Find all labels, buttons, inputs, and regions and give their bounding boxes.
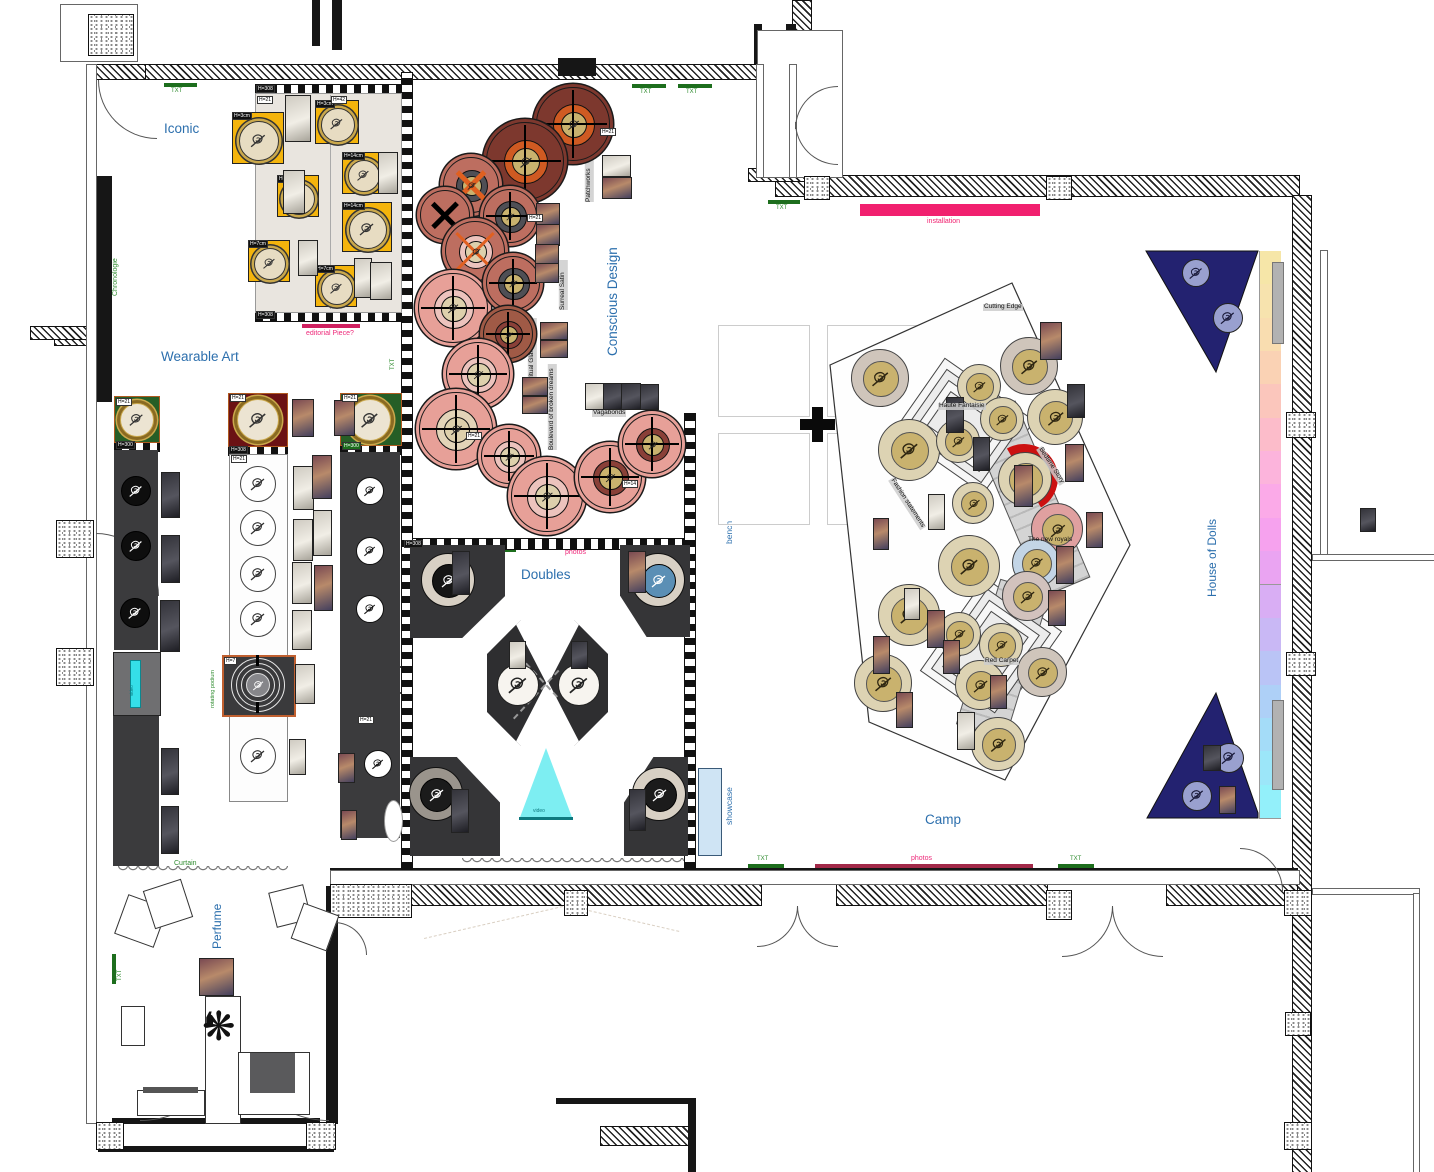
mannequin-icon	[504, 451, 516, 463]
podium-gold-ring	[120, 403, 154, 437]
garment-photo	[1014, 465, 1033, 507]
zone-label-cutting-edge: Cutting Edge	[983, 304, 1023, 311]
height-tag: H=21	[230, 394, 246, 402]
rainbow-segment	[1259, 351, 1281, 385]
mannequin-icon	[248, 518, 268, 538]
doll-disc	[1182, 781, 1212, 811]
height-tag: H=42	[331, 96, 347, 104]
mannequin-icon	[988, 734, 1010, 756]
garment-photo	[160, 600, 180, 652]
display-plate	[511, 460, 583, 532]
garment-photo	[289, 739, 306, 775]
height-tag: H=21	[527, 214, 543, 222]
garment-photo	[957, 712, 975, 750]
mannequin-icon	[248, 130, 269, 151]
height-tag: H=14	[622, 480, 638, 488]
rainbow-segment	[1259, 484, 1281, 518]
display-plate	[622, 414, 682, 474]
height-tag: H=300	[116, 441, 135, 449]
garment-photo	[973, 437, 990, 471]
mannequin-icon	[126, 604, 144, 622]
mannequin-icon	[504, 330, 515, 341]
garment-photo	[312, 455, 332, 499]
height-tag: H=21	[257, 96, 273, 104]
garment-photo	[341, 810, 357, 840]
mannequin-icon	[449, 422, 465, 438]
video-label: video	[130, 670, 135, 696]
camp-plinth	[952, 482, 994, 524]
garment-photo	[313, 510, 332, 556]
garment-photo	[1067, 384, 1085, 418]
mannequin-icon	[362, 543, 378, 559]
garment-photo	[378, 152, 398, 194]
height-tag: H=21	[342, 394, 358, 402]
garment-photo	[292, 610, 312, 650]
perfume-bench-top	[143, 1087, 198, 1093]
doubles-duo-disc	[558, 664, 600, 706]
mannequin-icon	[362, 601, 378, 617]
yellow-pedestal: H=7cm	[248, 240, 290, 282]
garment-photo	[451, 789, 469, 833]
display-disc-outline	[240, 556, 276, 592]
display-plate	[486, 256, 540, 310]
hod-gray-bar	[1272, 262, 1284, 344]
rainbow-segment	[1259, 618, 1281, 652]
garment-photo	[990, 675, 1007, 709]
garment-photo	[1360, 508, 1376, 532]
plinth-core	[951, 548, 989, 586]
doll-disc	[1182, 259, 1210, 287]
hod-gray-bar	[1272, 700, 1284, 790]
height-tag: H=308	[256, 85, 275, 93]
plinth-core	[966, 373, 993, 400]
mannequin-icon	[1018, 587, 1038, 607]
mannequin-icon	[505, 672, 531, 698]
plinth-core	[420, 778, 454, 812]
height-tag: H=3cm	[232, 112, 252, 120]
mannequin-icon	[971, 378, 989, 396]
garment-photo	[943, 640, 960, 674]
garment-photo	[904, 588, 920, 620]
mannequin-icon	[566, 672, 592, 698]
yellow-pedestal: H=3cm	[232, 112, 284, 164]
garment-photo	[199, 958, 234, 996]
height-tag: H=21	[116, 398, 132, 406]
display-disc-light	[364, 750, 392, 778]
mannequin-icon	[355, 167, 372, 184]
doll-icon	[1219, 748, 1239, 768]
doubles-duo-disc	[497, 664, 539, 706]
garment-photo	[370, 262, 392, 300]
garment-photo	[602, 177, 632, 199]
mannequin-icon	[604, 471, 618, 485]
height-tag: H=21	[358, 716, 374, 724]
garment-photo	[873, 518, 889, 550]
mannequin-icon	[1045, 407, 1068, 430]
mannequin-icon	[427, 785, 447, 805]
mannequin-icon	[869, 367, 893, 391]
height-tag: H=7cm	[248, 240, 268, 248]
mannequin-icon	[248, 609, 268, 629]
perfume-stand	[121, 1006, 145, 1046]
mannequin-icon	[248, 564, 268, 584]
doll-icon	[1187, 264, 1205, 282]
display-disc-outline	[240, 466, 276, 502]
garment-photo	[161, 535, 180, 583]
camp-plinth	[1002, 571, 1052, 621]
mannequin-icon	[872, 672, 896, 696]
mannequin-icon	[127, 410, 146, 429]
rainbow-segment	[1259, 451, 1281, 485]
rainbow-segment	[1259, 418, 1281, 452]
garment-photo	[628, 551, 646, 593]
mannequin-icon	[505, 211, 516, 222]
height-tag: H=7	[224, 657, 237, 665]
garment-photo	[1219, 786, 1236, 814]
garment-photo	[161, 806, 179, 854]
mannequin-icon	[466, 180, 478, 192]
video-label: video	[533, 809, 545, 814]
mannequin-icon	[127, 537, 145, 555]
plinth-core	[1028, 658, 1059, 689]
height-tag: H=308	[256, 311, 275, 319]
yellow-pedestal: H=7cm	[315, 265, 357, 307]
mannequin-icon	[518, 154, 535, 171]
mannequin-icon	[251, 678, 266, 693]
plinth-core	[989, 406, 1016, 433]
mannequin-icon	[540, 489, 555, 504]
mannequin-icon	[897, 438, 922, 463]
zone-label-red-carpet: Red Carpet	[984, 658, 1019, 665]
garment-photo	[161, 748, 179, 795]
mannequin-icon	[127, 482, 145, 500]
showcase-case	[698, 768, 722, 856]
garment-photo	[540, 340, 568, 358]
camp-plinth	[851, 349, 909, 407]
garment-photo	[295, 664, 315, 704]
garment-photo	[334, 400, 355, 436]
display-disc-outline	[240, 510, 276, 546]
floor-plan: Iconic Wearable Art Conscious Design Dou…	[0, 0, 1434, 1172]
garment-photo	[293, 519, 313, 561]
garment-photo	[602, 155, 631, 177]
garment-photo	[522, 377, 548, 396]
garment-photo	[640, 384, 659, 410]
plinth-core	[1013, 582, 1044, 613]
plinth-core	[863, 361, 899, 397]
rainbow-segment	[1259, 585, 1281, 619]
rainbow-segment	[1259, 518, 1281, 552]
mannequin-icon	[993, 637, 1011, 655]
garment-photo	[1056, 546, 1074, 584]
mannequin-icon	[357, 219, 377, 239]
garment-photo	[293, 466, 314, 510]
display-disc-light	[356, 595, 384, 623]
height-tag: H=14cm	[342, 202, 365, 210]
mannequin-icon	[566, 117, 582, 133]
plinth-core	[642, 564, 676, 598]
garment-photo	[292, 562, 312, 604]
garment-photo	[571, 641, 588, 669]
rotating-podium-disc	[246, 673, 270, 697]
garment-photo	[540, 322, 568, 340]
plinth-core	[982, 728, 1015, 761]
counter-c-ellipse	[384, 800, 403, 842]
garment-photo	[452, 551, 470, 595]
podium-gold-ring	[237, 399, 279, 441]
display-disc-outline	[240, 738, 276, 774]
garment-photo	[292, 399, 314, 437]
rainbow-segment	[1259, 651, 1281, 685]
mannequin-icon	[328, 280, 345, 297]
display-disc-light	[356, 477, 384, 505]
height-tag: H=21	[600, 128, 616, 136]
garment-photo	[873, 636, 890, 674]
crosshair-icon	[256, 702, 259, 713]
mannequin-icon	[1018, 355, 1042, 379]
display-disc-outline	[240, 601, 276, 637]
camp-plinth	[971, 717, 1025, 771]
mannequin-icon	[248, 746, 268, 766]
garment-photo	[1048, 590, 1066, 626]
garment-photo	[285, 95, 311, 142]
perfume-bench	[137, 1090, 205, 1116]
mannequin-icon	[650, 785, 670, 805]
yellow-pedestal: H=3cm	[315, 100, 359, 144]
garment-photo	[585, 383, 604, 410]
display-disc-dark	[120, 598, 150, 628]
mannequin-icon	[362, 483, 378, 499]
display-disc-dark	[121, 476, 151, 506]
height-tag: H=14cm	[342, 152, 365, 160]
video-triangle-base	[519, 817, 573, 820]
mannequin-icon	[472, 368, 486, 382]
zone-label-haute-fantaisie: Haute Fantaisie	[938, 403, 986, 410]
mannequin-icon	[470, 246, 483, 259]
rainbow-segment	[1259, 384, 1281, 418]
display-plate	[418, 273, 488, 343]
plinth-core	[961, 491, 987, 517]
height-tag: H=308	[229, 446, 248, 454]
mannequin-icon	[994, 411, 1012, 429]
garment-photo	[535, 263, 559, 283]
plinth-core	[891, 432, 929, 470]
starburst-icon: ❋	[202, 1006, 236, 1048]
mannequin-icon	[328, 115, 346, 133]
garment-photo	[1203, 745, 1221, 771]
garment-photo	[283, 170, 305, 214]
podium-gold-ring	[349, 399, 391, 441]
plinth-core	[643, 778, 677, 812]
camp-plinth	[938, 535, 1000, 597]
mannequin-icon	[358, 408, 382, 432]
plinth-core	[988, 632, 1015, 659]
mannequin-icon	[508, 278, 519, 289]
garment-photo	[1086, 512, 1103, 548]
mannequin-icon	[649, 571, 669, 591]
display-disc-dark	[121, 531, 151, 561]
height-tag: H=21	[231, 455, 247, 463]
counter-a-lower	[113, 716, 159, 866]
garment-photo	[629, 789, 646, 831]
camp-plinth	[1017, 647, 1067, 697]
mannequin-icon	[971, 676, 991, 696]
garment-photo	[928, 494, 945, 530]
mannequin-icon	[248, 474, 268, 494]
display-disc-light	[356, 537, 384, 565]
mannequin-icon	[966, 496, 983, 513]
doll-icon	[1218, 308, 1238, 328]
height-tag: H=21	[466, 432, 482, 440]
garment-photo	[1065, 444, 1084, 482]
doll-disc	[1213, 303, 1243, 333]
doll-icon	[1187, 786, 1207, 806]
camp-plinth	[980, 397, 1024, 441]
garment-photo	[1040, 322, 1062, 360]
mannequin-icon	[647, 439, 660, 452]
rainbow-segment	[1259, 551, 1281, 585]
mannequin-icon	[261, 255, 278, 272]
garment-photo	[621, 383, 641, 410]
garment-photo	[536, 224, 560, 246]
yellow-pedestal: H=14cm	[342, 202, 392, 252]
mannequin-icon	[957, 554, 982, 579]
height-tag: H=300	[342, 442, 361, 450]
height-tag: H=308	[404, 540, 423, 548]
garment-photo	[522, 396, 548, 414]
zone-label-new-royals: The new royals	[1028, 537, 1072, 544]
mannequin-icon	[446, 301, 461, 316]
garment-photo	[896, 692, 913, 728]
mannequin-icon	[370, 756, 386, 772]
perfume-display-block	[250, 1053, 295, 1093]
garment-photo	[509, 641, 526, 669]
garment-photo	[314, 565, 333, 611]
mannequin-icon	[246, 408, 270, 432]
camp-plinth	[878, 419, 940, 481]
garment-photo	[338, 753, 355, 783]
mannequin-icon	[950, 433, 968, 451]
garment-photo	[161, 472, 180, 518]
garment-photo	[603, 383, 622, 410]
garment-photo	[298, 240, 318, 276]
crosshair-icon	[256, 655, 259, 666]
plus-icon	[812, 407, 823, 442]
mannequin-icon	[1033, 663, 1053, 683]
